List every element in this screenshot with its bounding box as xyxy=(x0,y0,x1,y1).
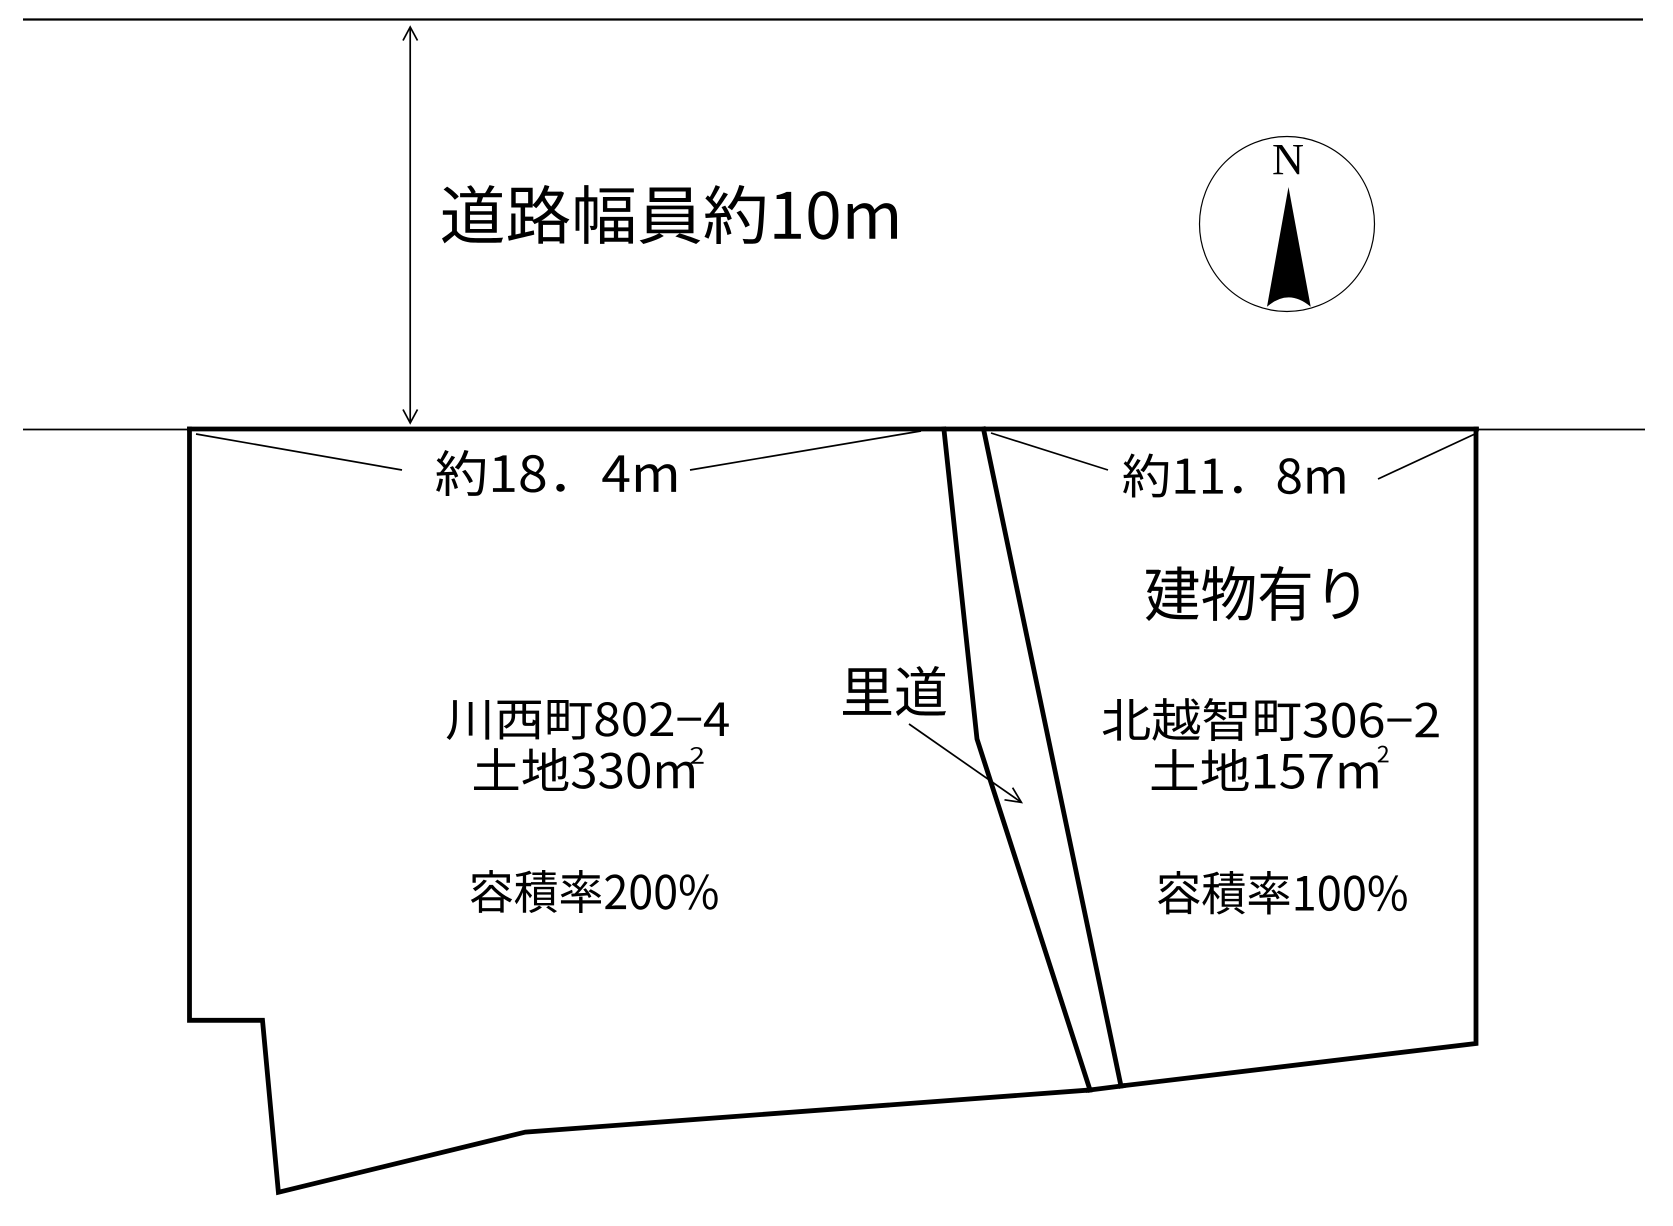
svg-text:N: N xyxy=(1272,134,1304,184)
